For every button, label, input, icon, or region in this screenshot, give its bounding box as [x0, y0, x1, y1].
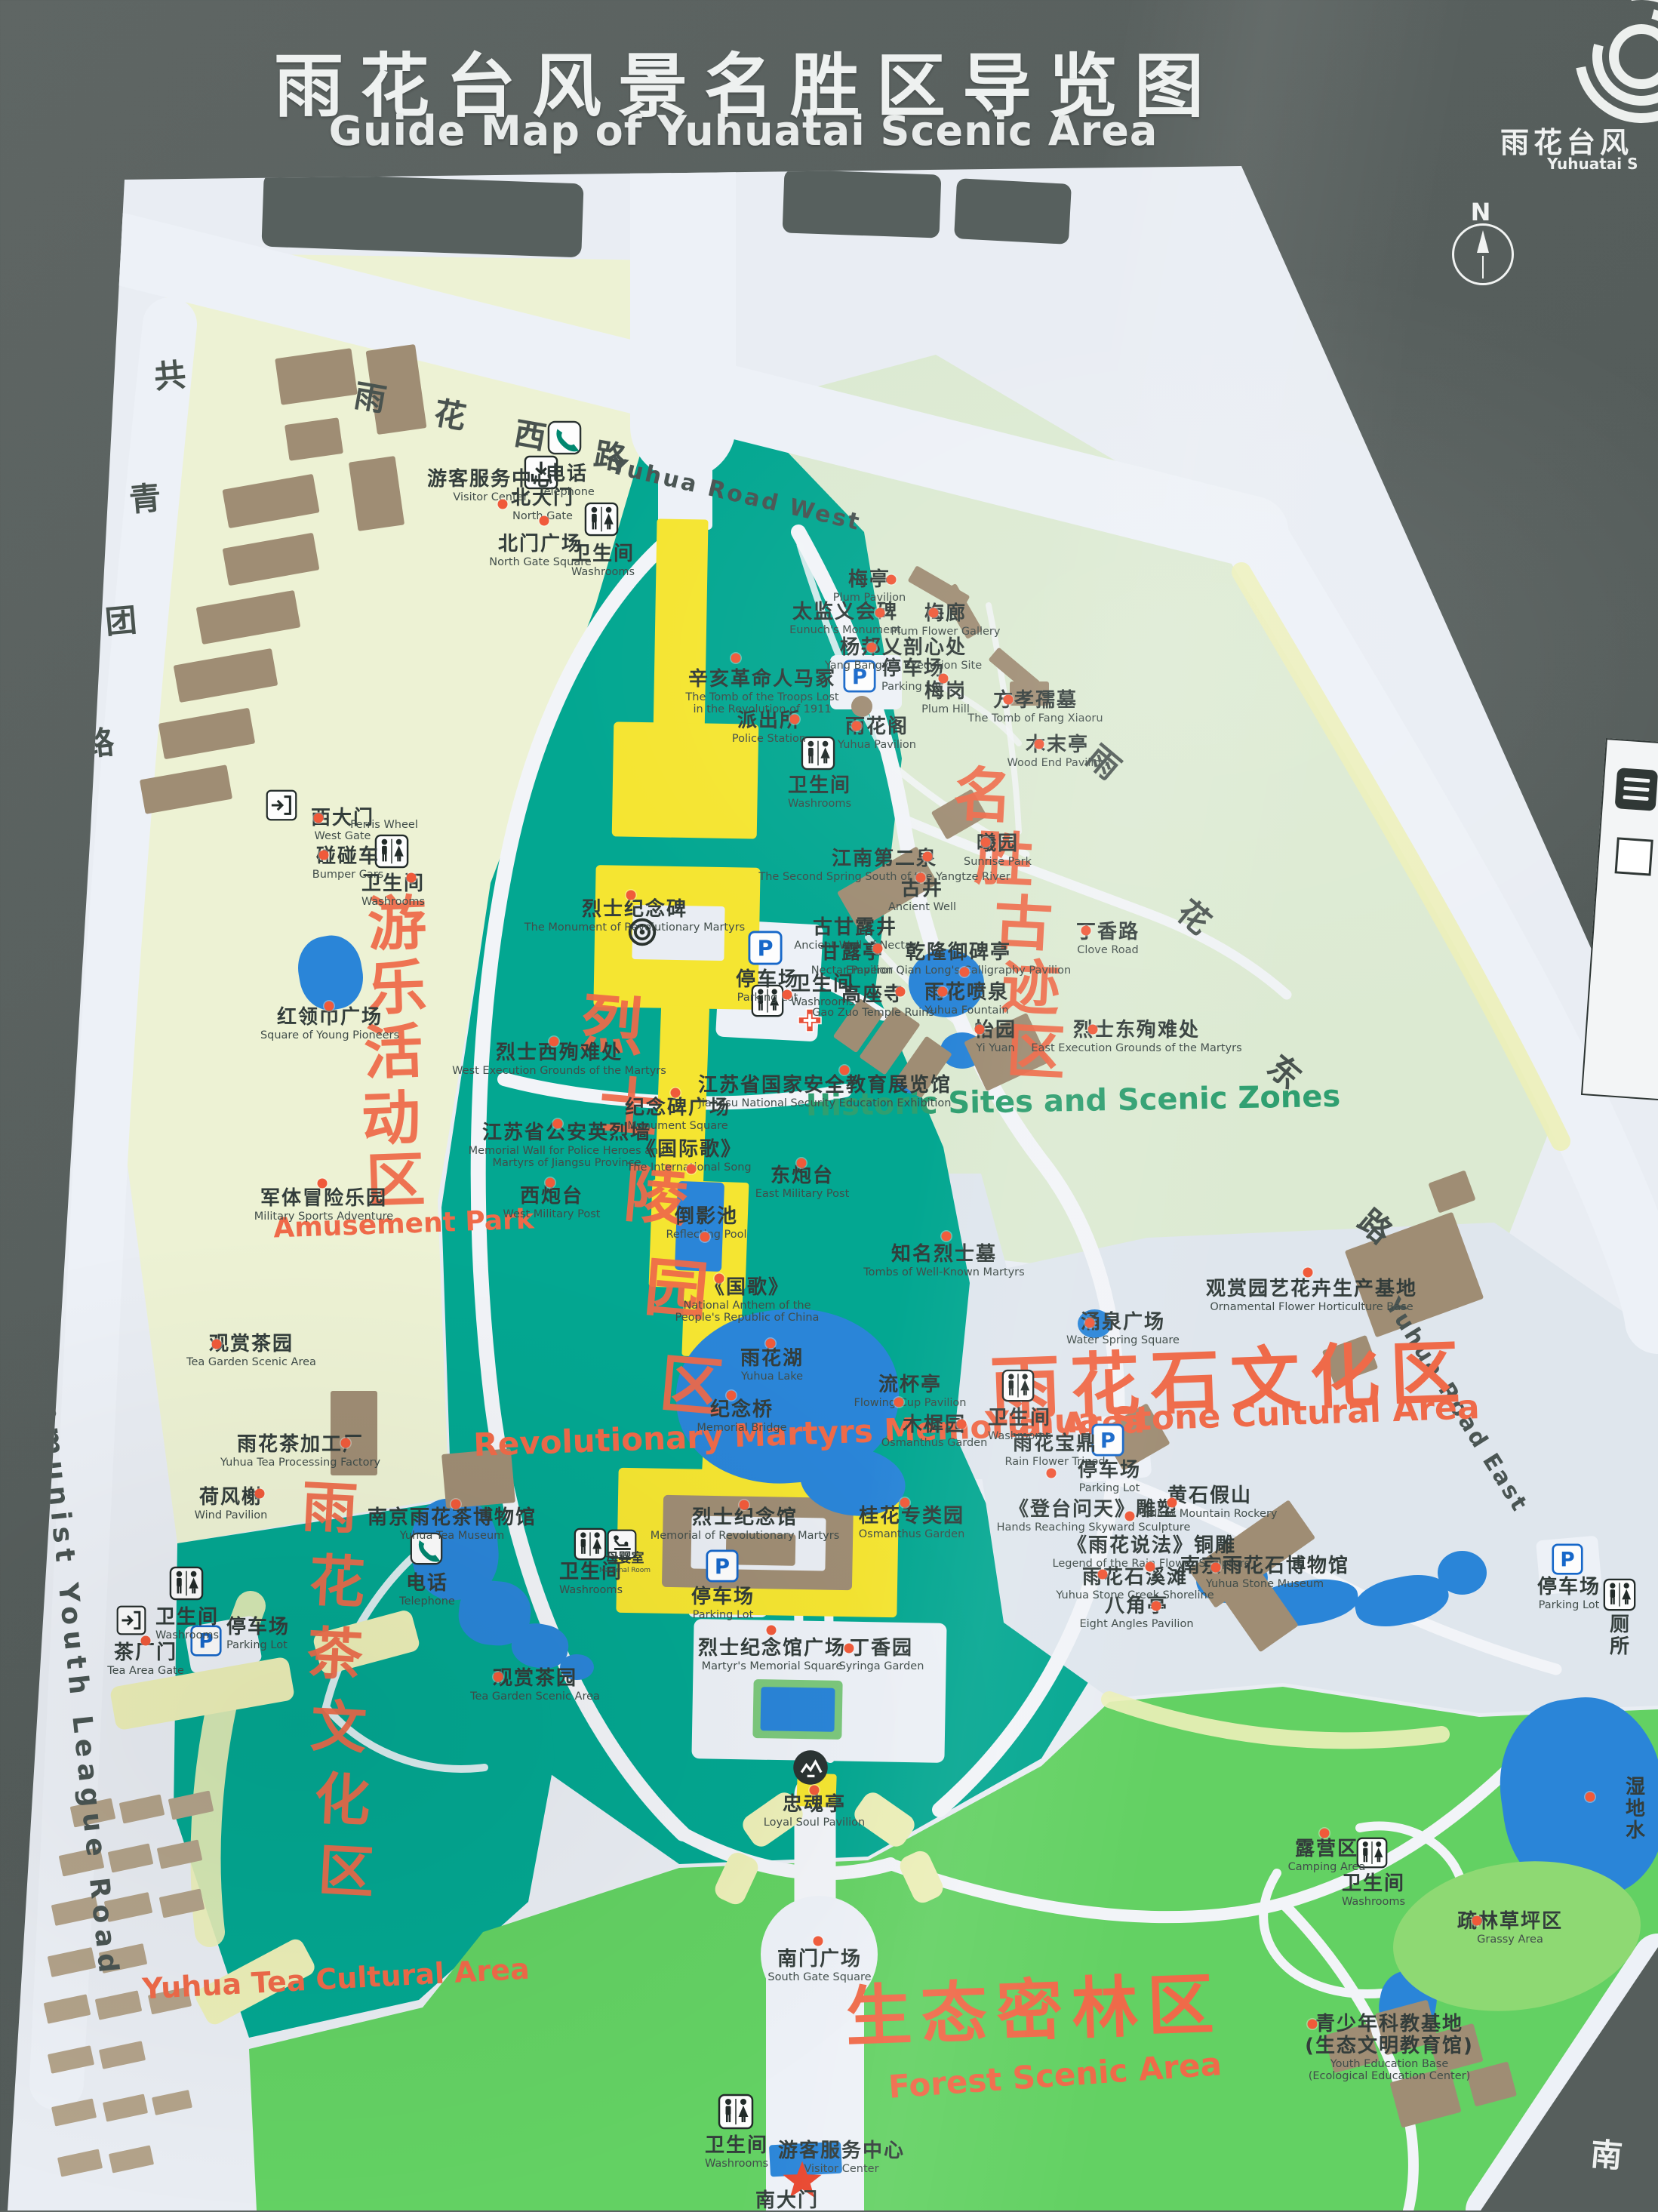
map-dot [960, 968, 970, 977]
map-dot [766, 1339, 776, 1349]
poi-label-cn: 桂花专类园 [859, 1506, 965, 1527]
poi-label-en: Parking Lot [226, 1639, 290, 1651]
poi-label-en: The Second Spring South of the Yangtze R… [758, 871, 1010, 883]
map-dot [783, 990, 792, 1000]
area-title-tea: 区 [316, 1826, 376, 1909]
map-dot [1586, 1792, 1595, 1802]
legend-map-icon [1615, 768, 1658, 811]
map-dot [1303, 1268, 1313, 1278]
area-title-tea: 茶 [305, 1608, 365, 1692]
poi-label-en: Square of Young Pioneers [260, 1029, 399, 1041]
poi-label-cn: 木樨园 [881, 1414, 988, 1436]
map-dot [797, 1158, 807, 1168]
map-dot [1472, 1916, 1482, 1926]
shape-bldg [851, 696, 872, 717]
poi-label-cn: 纪念桥 [697, 1399, 786, 1421]
compass-icon [1452, 223, 1514, 285]
shape-water [1438, 1551, 1487, 1595]
poi-label-cn: 湿地水 [1626, 1777, 1647, 1842]
poi-label-cn: 南门广场 [767, 1949, 871, 1970]
map-dot [731, 654, 741, 663]
road-char-league: 团 [103, 595, 138, 643]
poi-label-en: Osmanthus Garden [859, 1528, 965, 1540]
poi-west-execution: 烈士西殉难处West Execution Grounds of the Mart… [452, 1042, 666, 1077]
poi-south-gate-square: 南门广场South Gate Square [767, 1949, 871, 1983]
map-dot [1081, 926, 1091, 936]
map-dot [790, 715, 800, 725]
poi-label-cn: 卫生间 [155, 1607, 219, 1629]
poi-washrooms-central: 卫生间Washrooms [791, 974, 854, 1008]
poi-telephone-tea: 电话Telephone [399, 1573, 455, 1607]
poi-label-en: Washrooms [791, 996, 854, 1008]
poi-label-cn: 卫生间 [788, 775, 851, 797]
map-dot [1152, 1601, 1161, 1611]
map-dot [942, 1232, 952, 1241]
map-dot [894, 1398, 904, 1407]
poi-label-en: Yuhua Pavilion [838, 739, 916, 751]
poi-ancient-well: 古井Ancient Well [888, 878, 956, 913]
poi-label-cn: 停车场 [1078, 1460, 1141, 1481]
poi-second-spring: 江南第二泉The Second Spring South of the Yang… [758, 848, 1010, 883]
poi-horticulture-base: 观赏园艺花卉生产基地Ornamental Flower Horticulture… [1206, 1278, 1417, 1313]
poi-label-cn: 《国际歌》 [626, 1139, 751, 1161]
poi-label-en: Water Spring Square [1066, 1334, 1180, 1346]
map-dot [938, 987, 948, 997]
poi-label-cn: 露营区 [1288, 1838, 1366, 1860]
poi-label-cn: 卫生间 [791, 974, 854, 995]
poi-label-cn: 观赏园艺花卉生产基地 [1206, 1278, 1417, 1300]
road-char-league: 路 [80, 717, 115, 765]
poi-label-cn: 厕所 [1601, 1614, 1639, 1658]
road-char-league: 青 [127, 472, 162, 521]
poi-label-cn: 梅岗 [921, 681, 970, 703]
poi-label-en: Emperor Qian Long's Calligraphy Pavilion [846, 964, 1071, 977]
map-dot [325, 1001, 334, 1011]
poi-label-cn: 电话 [399, 1573, 455, 1595]
map-dot [1035, 740, 1044, 749]
poi-tea-processing-factory: 雨花茶加工厂Yuhua Tea Processing Factory [220, 1434, 380, 1469]
map-dot [1167, 1498, 1177, 1508]
area-title-tea: 花 [307, 1536, 367, 1620]
poi-label-en: Memorial of Revolutionary Martyrs [651, 1530, 840, 1542]
poi-eight-angles-pavilion: 八角亭Eight Angles Pavilion [1079, 1595, 1193, 1630]
poi-parking-east: 停车场Parking Lot [1537, 1577, 1601, 1611]
poi-plum-flower-gallery: 梅廊Plum Flower Gallery [891, 603, 1001, 638]
poi-label-cn: 黄石假山 [1142, 1485, 1277, 1507]
legend-icon-mark [1623, 795, 1648, 801]
poi-plum-hill: 梅岗Plum Hill [921, 681, 970, 715]
poi-label-cn: 卫生间 [988, 1407, 1051, 1429]
poi-label-cn: 青少年科教基地 (生态文明教育馆) [1305, 2014, 1474, 2057]
poi-label-cn: 《国歌》 [675, 1277, 820, 1299]
map-dot [255, 1489, 265, 1499]
poi-well-known-martyrs-tombs: 知名烈士墓Tombs of Well-Known Martyrs [863, 1244, 1024, 1278]
poi-label-en: Eight Angles Pavilion [1079, 1618, 1193, 1630]
road-char-south: 南 [1589, 2128, 1624, 2177]
poi-washrooms-north: 卫生间Washrooms [571, 543, 635, 578]
poi-wood-end-pavilion: 木末亭Wood End Pavilion [1007, 734, 1108, 769]
poi-label-en: Washrooms [705, 2158, 768, 2170]
area-title-tea: 文 [309, 1681, 368, 1765]
map-dot [1004, 695, 1014, 705]
poi-osmanthus-garden-2: 桂花专类园Osmanthus Garden [859, 1506, 965, 1540]
poi-label-en: Washrooms [361, 896, 425, 908]
poi-label-cn: 雨花湖 [740, 1348, 804, 1370]
poi-washrooms-forest: 卫生间Washrooms [1342, 1873, 1405, 1908]
map-sheet: 游客服务中心Visitor Center北大门North Gate北门广场Nor… [0, 0, 1658, 2210]
poi-martyrs-memorial-hall: 烈士纪念馆Memorial of Revolutionary Martyrs [651, 1507, 840, 1542]
map-dot [923, 852, 933, 862]
poi-label-en: The Monument of Revolutionary Martyrs [524, 921, 745, 934]
poi-tea-museum: 南京雨花茶博物馆Yuhua Tea Museum [368, 1507, 537, 1542]
legend-icon-mark [1623, 786, 1649, 792]
map-dot [626, 891, 636, 900]
poi-national-anthem: 《国歌》National Anthem of the People's Repu… [675, 1277, 820, 1324]
map-dot [1047, 1469, 1057, 1478]
map-dot [553, 1119, 563, 1129]
map-dot [671, 1088, 681, 1098]
map-dot [975, 1025, 985, 1035]
map-dot [1320, 1829, 1330, 1838]
poi-label-cn: 知名烈士墓 [863, 1244, 1024, 1266]
poi-label-en: Tea Garden Scenic Area [470, 1691, 600, 1703]
map-dot [549, 1037, 559, 1047]
poi-osmanthus-garden-1: 木樨园Osmanthus Garden [881, 1414, 988, 1449]
map-dot [875, 608, 885, 618]
map-dot [451, 1500, 461, 1509]
poi-label-en: Loyal Soul Pavilion [764, 1817, 865, 1829]
poi-label-cn: 卫生间 [705, 2135, 768, 2157]
poi-parking-memorial: 停车场Parking Lot [691, 1586, 755, 1621]
map-dot [494, 1672, 503, 1682]
area-title-forest: 生态密林区 [844, 1951, 1224, 2060]
poi-label-en: Memorial Bridge [697, 1422, 786, 1434]
map-dot [1125, 1512, 1135, 1521]
poi-label-cn: 雨花茶加工厂 [220, 1434, 380, 1456]
poi-label-cn: 流杯亭 [854, 1374, 967, 1396]
map-dot [314, 814, 324, 823]
poi-label-en: Yuhua Fountain [924, 1004, 1009, 1017]
poi-label-cn: 方孝孺墓 [967, 690, 1103, 712]
shape-dark [954, 178, 1072, 245]
poi-label-en: Tea Area Gate [107, 1665, 184, 1677]
poi-label-en: Flowing Cup Pavilion [854, 1397, 967, 1409]
map-dot [407, 873, 417, 883]
poi-label-en: Washrooms [559, 1584, 623, 1596]
poi-label-en: Police Station [732, 733, 806, 745]
shape-dark [261, 173, 583, 258]
poi-label-cn: 母婴室 [599, 1552, 651, 1566]
shape-bldg [349, 456, 405, 531]
compass-north-label: N [1471, 198, 1491, 226]
map-dot [916, 873, 926, 883]
poi-label-en: Ferris Wheel [350, 819, 418, 831]
map-dot [810, 1786, 820, 1795]
wc-icon [169, 1566, 204, 1601]
poi-yuhua-fountain: 雨花喷泉Yuhua Fountain [924, 982, 1009, 1017]
page-subtitle: Guide Map of Yuhuatai Scenic Area [329, 107, 1158, 155]
poi-east-execution: 烈士东殉难处East Execution Grounds of the Mart… [1031, 1020, 1241, 1054]
poi-monument-square: 纪念碑广场Monument Square [625, 1097, 731, 1132]
poi-label-cn: 卫生间 [571, 543, 635, 565]
poi-label-en: Telephone [399, 1595, 455, 1607]
poi-label-en: Tombs of Well-Known Martyrs [863, 1266, 1024, 1278]
poi-label-en: Martyr's Memorial Square [698, 1660, 846, 1672]
compass-needle [1477, 230, 1489, 253]
parking-icon [706, 1549, 739, 1583]
poi-water-spring-square: 涌泉广场Water Spring Square [1066, 1312, 1180, 1346]
map-dot [727, 1391, 737, 1401]
poi-label-cn: 停车场 [691, 1586, 755, 1608]
map-dot [319, 851, 329, 860]
map-dot [767, 1626, 777, 1635]
map-dot [1146, 1562, 1155, 1572]
poi-label-en: The Tomb of Fang Xiaoru [967, 712, 1103, 725]
map-dot [1211, 1563, 1221, 1573]
poi-label-cn: 停车场 [736, 969, 799, 991]
compass-needle [1482, 256, 1484, 278]
poi-label-cn: 雨花石溪滩 [1056, 1567, 1214, 1589]
poi-label-en: South Gate Square [767, 1971, 871, 1983]
map-dot [1088, 1025, 1098, 1035]
parking-icon [748, 931, 783, 965]
map-dot [939, 674, 949, 684]
poi-military-adventure: 军体冒险乐园Military Sports Adventure [254, 1188, 393, 1223]
poi-label-cn: 南京雨花茶博物馆 [368, 1507, 537, 1529]
poi-label-cn: 《雨花说法》铜雕 [1053, 1535, 1251, 1557]
poi-label-cn: 停车场 [881, 658, 945, 680]
loyal-icon [791, 1748, 830, 1787]
legend-card [1581, 738, 1658, 1101]
poi-label-en: Syringa Garden [839, 1660, 924, 1672]
poi-label-en: Washrooms [788, 798, 851, 810]
poi-label-en: Camping Area [1288, 1861, 1366, 1873]
map-dot [498, 500, 508, 509]
map-dot [873, 944, 883, 954]
poi-label-en: Wind Pavilion [195, 1509, 268, 1521]
poi-label-en: Grassy Area [1457, 1934, 1563, 1946]
poi-label-en: Monument Square [625, 1120, 731, 1132]
poi-label-cn: 梅廊 [891, 603, 1001, 625]
poi-label-cn: 纪念碑广场 [625, 1097, 731, 1119]
map-dot [740, 1500, 749, 1510]
road-char-league: 共 [152, 349, 187, 398]
map-dot [212, 1340, 222, 1349]
poi-label-en: West Military Post [503, 1208, 601, 1220]
poi-label-cn: 电话 [539, 463, 595, 485]
poi-label-cn: 烈士西殉难处 [452, 1042, 666, 1064]
poi-label-en: Yuhua Lake [740, 1371, 804, 1383]
poi-fang-xiaoru-tomb: 方孝孺墓The Tomb of Fang Xiaoru [967, 690, 1103, 725]
map-dot [318, 1179, 328, 1189]
poi-eunuchs-monument: 太监义会碑Eunuch's Monument [789, 601, 901, 636]
phone-icon [547, 420, 582, 455]
map-dot [715, 1274, 724, 1284]
poi-label-cn: 烈士纪念馆广场 [698, 1638, 846, 1660]
map-dot [341, 1438, 351, 1448]
poi-label-cn: 观赏茶园 [470, 1668, 600, 1690]
poi-label-cn: 忠魂亭 [764, 1794, 865, 1816]
poi-label-cn: 烈士纪念碑 [524, 899, 745, 921]
poi-washrooms-east: 厕所 [1601, 1614, 1639, 1658]
poi-tea-garden-north: 观赏茶园Tea Garden Scenic Area [186, 1334, 316, 1368]
map-dot [852, 721, 862, 731]
area-title-tea: 雨 [300, 1462, 359, 1546]
map-dot [1098, 1570, 1108, 1580]
poi-yellow-mountain-rockery: 黄石假山Yellow Mountain Rockery [1142, 1485, 1277, 1520]
poi-east-military-post: 东炮台East Military Post [755, 1165, 850, 1200]
poi-label-en: Parking Lot [1537, 1599, 1601, 1611]
poi-label-en: Washrooms [1342, 1896, 1405, 1908]
map-dot [814, 1937, 823, 1946]
poi-label-cn: 江苏省国家安全教育展览馆 [698, 1075, 952, 1097]
map-dot [687, 1164, 697, 1174]
poi-parking-tea: 停车场Parking Lot [226, 1617, 290, 1651]
legend-symbol-box [1615, 837, 1653, 875]
poi-ferris-wheel: Ferris Wheel [350, 818, 418, 831]
poi-label-cn: 杨邦乂剖心处 [825, 637, 982, 659]
poi-label-cn: 辛亥革命人马冢 [685, 669, 838, 691]
poi-label-en: Eunuch's Monument [789, 624, 901, 636]
poi-west-military-post: 西炮台West Military Post [503, 1186, 601, 1220]
shape-water [761, 1687, 835, 1732]
poi-tea-gate: 茶厂门Tea Area Gate [107, 1642, 184, 1677]
poi-label-en: West Gate [311, 830, 374, 842]
poi-washrooms-stone: 卫生间Washrooms [988, 1407, 1051, 1442]
poi-label-cn: 西炮台 [503, 1186, 601, 1208]
map-dot [887, 575, 897, 585]
poi-label-en: Plum Hill [921, 703, 970, 715]
map-dot [540, 516, 549, 526]
poi-label-en: Clove Road [1076, 944, 1140, 956]
poi-label-en: Wood End Pavilion [1007, 757, 1108, 769]
poi-label-en: National Anthem of the People's Republic… [675, 1300, 820, 1324]
map-dot [840, 1066, 850, 1075]
shape-bldg [285, 417, 343, 461]
poi-label-cn: 停车场 [226, 1617, 290, 1638]
logo-subtitle: Yuhuatai S [1547, 155, 1638, 173]
poi-young-pioneers-square: 红领巾广场Square of Young Pioneers [260, 1007, 399, 1041]
poi-label-en: East Execution Grounds of the Martyrs [1031, 1042, 1241, 1054]
poi-label-en: Military Sports Adventure [254, 1211, 393, 1223]
poi-memorial-hall-square: 烈士纪念馆广场Martyr's Memorial Square [698, 1638, 846, 1672]
map-dot [929, 608, 939, 618]
wc-icon [718, 2094, 754, 2130]
poi-label-cn: 江南第二泉 [758, 848, 1010, 870]
poi-label-en: Washrooms [155, 1629, 219, 1641]
poi-syringa-garden: 丁香园Syringa Garden [839, 1638, 924, 1672]
poi-label-en: Washrooms [988, 1430, 1051, 1442]
poi-wetland: 湿地水 [1626, 1777, 1647, 1842]
poi-label-en: Visitor Center [778, 2163, 905, 2175]
map-dot [900, 1498, 910, 1508]
poi-south-gate: 南大门 [755, 2190, 819, 2212]
poi-flowing-cup-pavilion: 流杯亭Flowing Cup Pavilion [854, 1374, 967, 1409]
exit-icon [116, 1605, 146, 1635]
poi-label-cn: 游客服务中心 [778, 2140, 905, 2162]
map-dot [141, 1636, 151, 1646]
poi-label-en: East Military Post [755, 1188, 850, 1200]
poi-label-en: Gao Zuo Temple Ruins [812, 1007, 934, 1019]
poi-label-en: West Execution Grounds of the Martyrs [452, 1065, 666, 1077]
poi-label-cn: 卫生间 [1342, 1873, 1405, 1895]
map-dot [546, 1178, 555, 1188]
poi-label-cn: 观赏茶园 [186, 1334, 316, 1355]
poi-parking-stone: 停车场Parking Lot [1078, 1460, 1141, 1494]
poi-label-en: Hands Reaching Skyward Sculpture [997, 1521, 1191, 1534]
poi-label-cn: 木末亭 [1007, 734, 1108, 756]
poi-martyrs-monument: 烈士纪念碑The Monument of Revolutionary Marty… [524, 899, 745, 934]
poi-yuhua-pavilion: 雨花阁Yuhua Pavilion [838, 716, 916, 751]
poi-label-en: Washrooms [571, 566, 635, 578]
map-dot [981, 838, 991, 848]
poi-label-en: Telephone [539, 486, 595, 498]
poi-label-en: Parking Lot [1078, 1482, 1141, 1494]
poi-yuhua-lake: 雨花湖Yuhua Lake [740, 1348, 804, 1383]
wc-icon [1001, 1369, 1035, 1402]
poi-label-cn: 八角亭 [1079, 1595, 1193, 1617]
poi-maternal-room: 母婴室Maternal Room [599, 1552, 651, 1574]
poi-label-en: Jiangsu National Security Education Exhi… [698, 1097, 952, 1109]
poi-label-cn: 倒影池 [666, 1206, 746, 1228]
poi-label-cn: 古甘露井 [794, 917, 915, 939]
poi-security-exhibition: 江苏省国家安全教育展览馆Jiangsu National Security Ed… [698, 1075, 952, 1109]
poi-telephone-north: 电话Telephone [539, 463, 595, 498]
poi-label-cn: 烈士东殉难处 [1031, 1020, 1241, 1041]
poi-label-en: Yellow Mountain Rockery [1142, 1508, 1277, 1520]
poi-label-cn: 烈士纪念馆 [651, 1507, 840, 1529]
poi-label-en: Ancient Well [888, 901, 956, 913]
poi-label-cn: 涌泉广场 [1066, 1312, 1180, 1334]
map-dot [867, 643, 877, 653]
wc-icon [584, 502, 619, 537]
poi-label-en: Ornamental Flower Horticulture Base [1206, 1301, 1417, 1313]
poi-label-en: Yuhua Tea Museum [368, 1530, 537, 1542]
poi-memorial-bridge: 纪念桥Memorial Bridge [697, 1399, 786, 1434]
poi-label-en: Yuhua Tea Processing Factory [220, 1457, 380, 1469]
shape-dark [783, 169, 942, 238]
map-dot [1085, 1318, 1095, 1328]
poi-label-en: Yi Yuan [974, 1042, 1017, 1054]
legend-icon-mark [1624, 777, 1650, 783]
poi-label-en: Parking Lot [691, 1609, 755, 1621]
poi-label-en: Youth Education Base (Ecological Educati… [1305, 2058, 1474, 2082]
poi-visitor-center-south: 游客服务中心Visitor Center [778, 2140, 905, 2175]
parking-icon [1552, 1543, 1583, 1575]
poi-label-en: Osmanthus Garden [881, 1437, 988, 1449]
poi-label-en: Tea Garden Scenic Area [186, 1356, 316, 1368]
poi-tea-garden-south: 观赏茶园Tea Garden Scenic Area [470, 1668, 600, 1703]
map-dot [844, 1644, 854, 1654]
poi-washrooms-ne: 卫生间Washrooms [788, 775, 851, 810]
poi-camping-area: 露营区Camping Area [1288, 1838, 1366, 1873]
poi-label-en: Maternal Room [599, 1567, 651, 1574]
wc-icon [1603, 1578, 1636, 1611]
map-dot [957, 1420, 967, 1429]
poi-label-cn: 南大门 [755, 2190, 819, 2212]
poi-label-cn: 雨花阁 [838, 716, 916, 738]
poi-loyal-soul-pavilion: 忠魂亭Loyal Soul Pavilion [764, 1794, 865, 1829]
exit-icon [266, 789, 297, 821]
poi-plum-pavilion: 梅亭Plum Pavilion [833, 569, 906, 604]
poi-label-cn: 东炮台 [755, 1165, 850, 1187]
poi-label-cn: 停车场 [1537, 1577, 1601, 1598]
poi-washrooms-tea: 卫生间Washrooms [155, 1607, 219, 1641]
map-dot [700, 1232, 710, 1242]
poi-washrooms-south: 卫生间Washrooms [705, 2135, 768, 2170]
poi-youth-education-base: 青少年科教基地 (生态文明教育馆)Youth Education Base (E… [1305, 2014, 1474, 2083]
map-dot [1308, 2020, 1318, 2029]
